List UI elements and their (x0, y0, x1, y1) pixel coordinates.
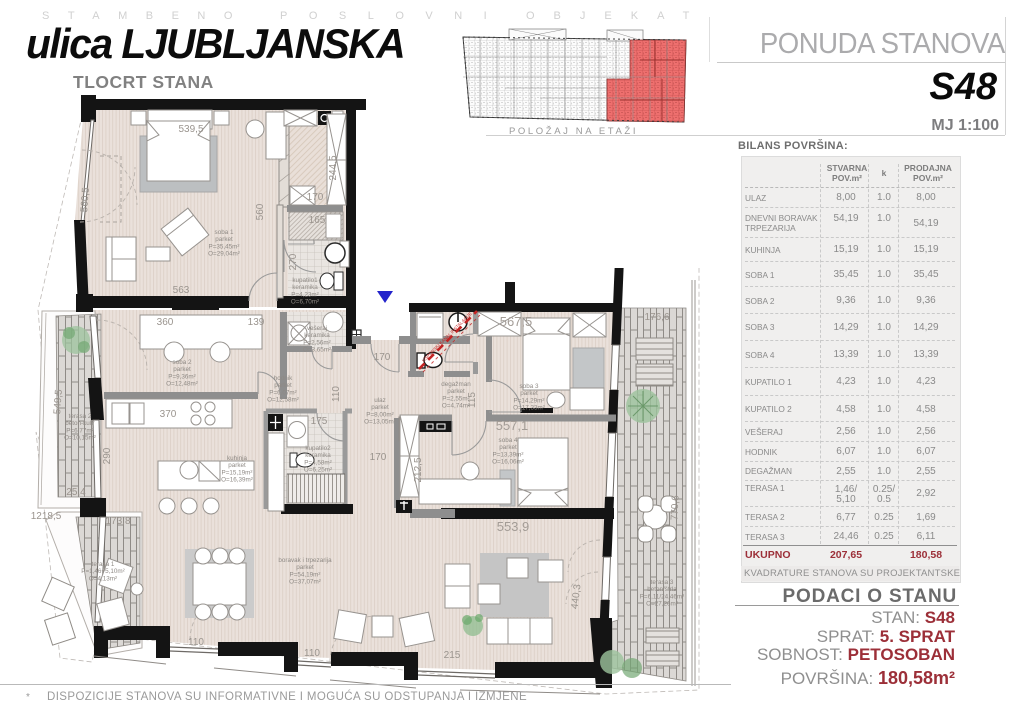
svg-text:165: 165 (309, 215, 326, 226)
svg-text:139: 139 (248, 317, 265, 328)
svg-text:170: 170 (307, 192, 324, 203)
svg-text:215: 215 (444, 650, 461, 661)
svg-text:176,6: 176,6 (644, 312, 669, 323)
svg-text:557,1: 557,1 (496, 418, 529, 433)
svg-text:567,5: 567,5 (500, 314, 533, 329)
svg-text:539,5: 539,5 (178, 124, 203, 135)
svg-text:553,9: 553,9 (497, 519, 530, 534)
svg-text:370: 370 (160, 409, 177, 420)
svg-text:290: 290 (102, 447, 113, 464)
svg-text:212,5: 212,5 (413, 457, 424, 482)
svg-text:560,5: 560,5 (79, 187, 92, 213)
svg-text:terasa 2beton-kulirP=6,77m²O=1: terasa 2beton-kulirP=6,77m²O=10,15m² (64, 413, 96, 442)
svg-text:563: 563 (173, 285, 190, 296)
svg-text:1218,5: 1218,5 (31, 511, 62, 522)
svg-text:270: 270 (288, 253, 299, 270)
svg-text:173,8: 173,8 (105, 516, 130, 527)
svg-text:vešerajkeramikaP=2,56m²O=3,65m: vešerajkeramikaP=2,56m²O=3,65m² (303, 325, 331, 354)
svg-text:244,5: 244,5 (328, 155, 339, 180)
svg-text:kupatilo2keramikaP=4,58m²O=6,2: kupatilo2keramikaP=4,58m²O=6,25m² (304, 445, 332, 474)
svg-text:170: 170 (370, 452, 387, 463)
svg-text:175: 175 (311, 416, 328, 427)
svg-text:770,6: 770,6 (669, 495, 681, 521)
svg-text:kupatilo1keramikaP=4,23m²O=6,7: kupatilo1keramikaP=4,23m²O=6,70m² (291, 277, 319, 306)
svg-text:549,5: 549,5 (52, 389, 65, 415)
svg-text:170: 170 (374, 352, 391, 363)
svg-text:110: 110 (331, 386, 342, 402)
svg-text:110: 110 (304, 648, 320, 659)
svg-text:degažmanparketP=2,55m²O=4,74m²: degažmanparketP=2,55m²O=4,74m² (441, 381, 471, 410)
svg-text:360: 360 (157, 317, 174, 328)
svg-text:560: 560 (255, 203, 266, 220)
svg-text:110: 110 (188, 637, 204, 648)
svg-text:25,4: 25,4 (66, 487, 86, 498)
